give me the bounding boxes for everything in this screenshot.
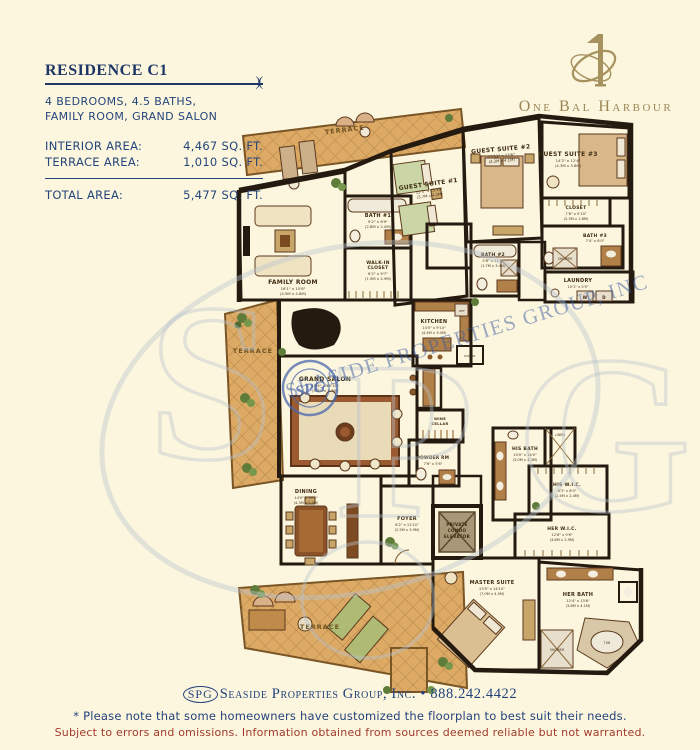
grand-salon-metric: (5.9M x 5.7M) xyxy=(312,388,339,393)
kitchen-metric: (4.4M x 3.0M) xyxy=(422,331,447,335)
interior-area-label: INTERIOR AREA: xyxy=(45,138,142,155)
armchair xyxy=(392,437,402,447)
pillow xyxy=(617,138,625,156)
dining-chair xyxy=(286,526,293,534)
his-wic-metric: (2.4M x 2.4M) xyxy=(555,494,580,498)
grand-piano xyxy=(291,308,340,349)
terrace-area-row: TERRACE AREA: 1,010 SQ. FT. xyxy=(45,154,263,171)
sink xyxy=(588,571,598,578)
foyer-label: FOYER xyxy=(397,516,417,522)
residence-spec-block: RESIDENCE C1 )( 4 BEDROOMS, 4.5 BATHS, F… xyxy=(45,60,263,204)
closet-hangers xyxy=(538,468,594,474)
bar-stool xyxy=(410,375,416,381)
fan-chair xyxy=(356,113,374,122)
residence-title-row: RESIDENCE C1 )( xyxy=(45,60,263,85)
master-metric: (7.0M x 4.5M) xyxy=(480,592,505,596)
kitchen-dims: 14'5" x 9'10" xyxy=(422,326,446,330)
nightstand xyxy=(525,154,534,163)
shower3-label: SHOWER xyxy=(558,257,573,261)
master-shower-label: SHOWER xyxy=(550,648,565,652)
closet3-dims: 7'6" x 5'10" xyxy=(565,212,586,216)
dryer-label: D xyxy=(602,295,606,300)
bar-counter xyxy=(423,370,435,406)
ref-label: REF xyxy=(459,309,465,313)
powder-label: POWDER RM xyxy=(417,455,449,460)
room-grand-salon xyxy=(279,356,417,476)
pantry-label: PANTRY xyxy=(464,354,476,358)
bathtub xyxy=(348,199,406,212)
family-room-metric: (4.9M x 4.8M) xyxy=(280,291,307,296)
room-guest2 xyxy=(463,118,542,242)
vanity xyxy=(495,442,506,500)
spg-badge: SPG xyxy=(183,686,218,703)
features-line-2: FAMILY ROOM, GRAND SALON xyxy=(45,109,263,124)
room-laundry xyxy=(545,272,633,302)
interior-area-row: INTERIOR AREA: 4,467 SQ. FT. xyxy=(45,138,263,155)
vanity xyxy=(497,280,517,292)
wine-label-2: CELLAR xyxy=(431,422,448,426)
powder-dims: 7'6" x 5'6" xyxy=(424,462,443,466)
pillow xyxy=(617,160,625,178)
total-area-value: 5,477 SQ. FT. xyxy=(183,187,263,204)
door-swing xyxy=(395,550,409,564)
dining-dims: 14'0" x 16'5" xyxy=(294,496,318,500)
his-bath-metric: (3.0M x 4.3M) xyxy=(513,458,538,462)
toilet xyxy=(624,587,632,597)
family-room-label: FAMILY ROOM xyxy=(268,279,318,286)
floorplan-image: TERRACE TERRACE TERRACE FAMILY ROOM 16'1… xyxy=(218,100,650,698)
elevator-label-2: CONDO xyxy=(448,528,467,533)
chair xyxy=(445,572,457,584)
dining-chair xyxy=(286,540,293,548)
elevator-label-3: ELEVATOR xyxy=(444,534,471,539)
total-area-row: TOTAL AREA: 5,477 SQ. FT. xyxy=(45,187,263,204)
interior-area-value: 4,467 SQ. FT. xyxy=(183,138,263,155)
her-bath-label: HER BATH xyxy=(563,592,593,598)
guest3-metric: (4.3M x 3.8M) xyxy=(555,163,582,168)
page-title: RESIDENCE C1 xyxy=(45,62,168,79)
area-table: INTERIOR AREA: 4,467 SQ. FT. TERRACE ARE… xyxy=(45,138,263,204)
flyer-page: RESIDENCE C1 )( 4 BEDROOMS, 4.5 BATHS, F… xyxy=(0,0,700,750)
table-decor xyxy=(280,235,290,247)
master-label: MASTER SUITE xyxy=(470,580,515,586)
elevator-label-1: PRIVATE xyxy=(446,522,468,527)
bullet-separator: • xyxy=(420,686,426,702)
his-wic-label: HIS W.I.C. xyxy=(553,482,581,488)
phone-number: 888.242.4422 xyxy=(430,686,517,702)
company-line: SPGSeaside Properties Group, Inc. • 888.… xyxy=(0,686,700,703)
armchair xyxy=(370,459,380,469)
bath2-dims: 5'6" x 11'2" xyxy=(482,259,503,263)
room-wine-cellar xyxy=(417,410,463,442)
sofa xyxy=(255,206,311,226)
her-wic-label: HER W.I.C. xyxy=(547,526,577,532)
laundry-label: LAUNDRY xyxy=(564,278,593,284)
his-bath-dims: 10'0" x 14'0" xyxy=(513,453,537,457)
her-bath-metric: (3.8M x 4.1M) xyxy=(566,604,591,608)
lounge-chair xyxy=(279,146,298,180)
sofa xyxy=(255,256,311,276)
terrace-left-label: TERRACE xyxy=(233,347,273,355)
sink xyxy=(497,452,504,461)
laundry-dims: 10'1" x 5'5" xyxy=(567,285,588,289)
total-divider xyxy=(45,178,263,179)
media-cabinet xyxy=(243,226,250,256)
terrace-area-value: 1,010 SQ. FT. xyxy=(183,154,263,171)
sink xyxy=(606,251,616,258)
sink xyxy=(443,474,452,480)
grand-salon-label: GRAND SALON xyxy=(299,376,351,383)
stool xyxy=(428,355,433,360)
kitchen-label: KITCHEN xyxy=(421,319,448,325)
master-dims: 23'0" x 14'10" xyxy=(479,587,505,591)
dining-chair xyxy=(305,558,315,565)
her-wic-dims: 12'6" x 9'6" xyxy=(551,533,572,537)
dining-chair xyxy=(329,512,336,520)
one-bal-harbour-logo: One Bal Harbour xyxy=(500,30,692,116)
bath2-metric: (1.7M x 3.4M) xyxy=(481,264,506,268)
bath3-dims: 7'4" x 8'0" xyxy=(586,239,605,243)
tub-label: TUB xyxy=(603,641,610,645)
title-ornament-icon: )( xyxy=(256,75,261,91)
total-area-label: TOTAL AREA: xyxy=(45,187,123,204)
armchair xyxy=(300,393,310,403)
closet-hangers xyxy=(349,291,398,298)
toilet xyxy=(350,230,360,242)
foyer-metric: (2.5M x 3.9M) xyxy=(395,528,420,532)
guest3-label: GUEST SUITE #3 xyxy=(538,151,598,158)
terrace-left xyxy=(225,300,283,488)
terrace-area-label: TERRACE AREA: xyxy=(45,154,140,171)
washer-label: W xyxy=(583,295,588,300)
sink xyxy=(497,482,504,491)
room-bath3 xyxy=(542,226,623,268)
buffet xyxy=(347,504,358,558)
utility-sink xyxy=(551,289,559,297)
room-his-bath xyxy=(493,428,551,520)
terrace-table xyxy=(249,610,285,630)
bath2-label: BATH #2 xyxy=(481,252,505,258)
one-bal-harbour-emblem-icon xyxy=(554,30,638,92)
residence-features: 4 BEDROOMS, 4.5 BATHS, FAMILY ROOM, GRAN… xyxy=(45,94,263,125)
his-bath-label: HIS BATH xyxy=(512,446,538,452)
dining-metric: (4.3M x 5.0M) xyxy=(294,501,319,505)
terrace-top xyxy=(243,109,465,189)
sink xyxy=(556,571,566,578)
dining-label: DINING xyxy=(295,489,317,495)
stool xyxy=(438,355,443,360)
armchair xyxy=(310,459,320,469)
toilet xyxy=(416,468,426,480)
brand-name: One Bal Harbour xyxy=(500,98,692,116)
dining-chair xyxy=(329,540,336,548)
wine-label-1: WINE xyxy=(434,417,446,421)
terrace-bottom-label: TERRACE xyxy=(300,623,340,631)
footer: SPGSeaside Properties Group, Inc. • 888.… xyxy=(0,686,700,739)
features-line-1: 4 BEDROOMS, 4.5 BATHS, xyxy=(45,94,263,109)
kitchen-island xyxy=(423,338,451,351)
company-name: Seaside Properties Group, Inc. xyxy=(220,686,416,702)
closet-hangers xyxy=(525,550,597,556)
toilet xyxy=(508,431,518,439)
lounge-chair xyxy=(299,140,318,174)
customization-note: * Please note that some homeowners have … xyxy=(0,709,700,723)
dresser xyxy=(493,226,523,235)
room-guest1 xyxy=(391,131,467,305)
dresser xyxy=(523,600,535,640)
his-wic-dims: 8'3" x 8'0" xyxy=(558,489,577,493)
armchair xyxy=(392,409,402,419)
armchair xyxy=(340,461,350,471)
toilet xyxy=(477,278,487,290)
foyer-dims: 8'2" x 12'10" xyxy=(395,523,419,527)
dining-chair xyxy=(329,526,336,534)
her-bath-dims: 12'4" x 13'6" xyxy=(566,599,590,603)
closet3-metric: (2.3M x 1.8M) xyxy=(564,217,589,221)
bath1-metric: (2.8M x 2.0M) xyxy=(365,224,392,229)
room-bath2 xyxy=(471,242,519,296)
legal-disclaimer: Subject to errors and omissions. Informa… xyxy=(0,726,700,739)
chair xyxy=(547,176,559,188)
closet3-label: CLOSET xyxy=(565,205,587,211)
bar-stool xyxy=(410,389,416,395)
walkin-metric: (1.9M x 2.9M) xyxy=(365,276,392,281)
linen-label: LINEN xyxy=(555,433,565,437)
her-wic-metric: (3.8M x 2.9M) xyxy=(550,538,575,542)
dining-chair xyxy=(286,512,293,520)
